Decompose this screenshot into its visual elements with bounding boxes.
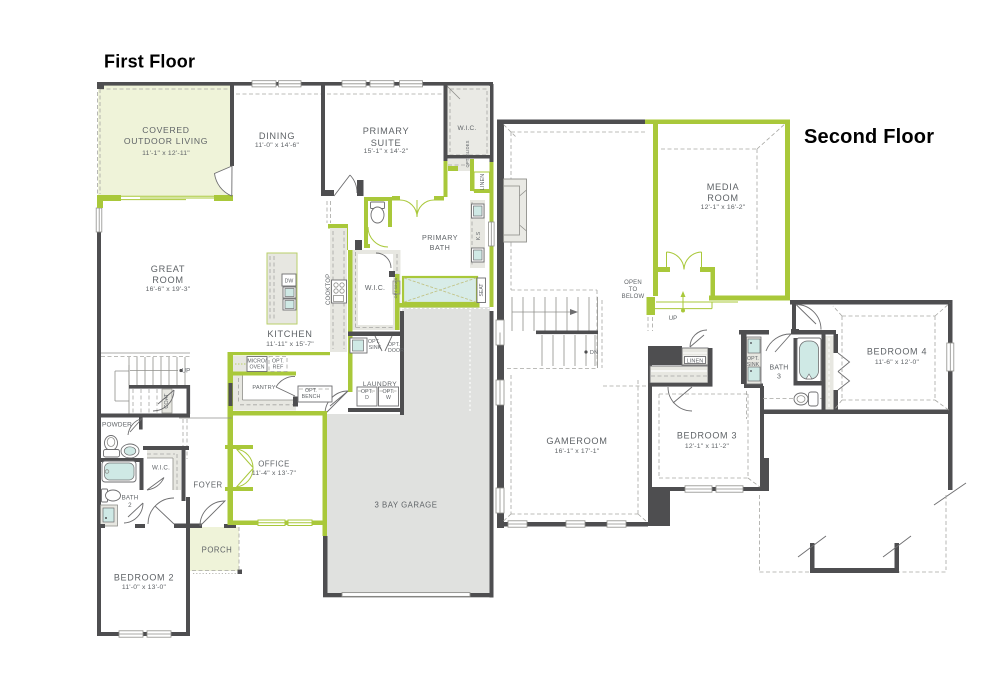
- svg-text:W.I.C.: W.I.C.: [365, 285, 385, 292]
- svg-text:11'-6" x 12'-0": 11'-6" x 12'-0": [875, 359, 920, 366]
- svg-text:2: 2: [128, 502, 132, 509]
- svg-text:12'-1" x 11'-2": 12'-1" x 11'-2": [685, 443, 730, 450]
- svg-text:OUTDOOR LIVING: OUTDOOR LIVING: [124, 136, 208, 146]
- svg-text:LINEN: LINEN: [480, 174, 486, 191]
- svg-text:First Floor: First Floor: [104, 52, 195, 72]
- svg-text:REF: REF: [273, 365, 284, 371]
- svg-text:15'-1" x 14'-2": 15'-1" x 14'-2": [364, 148, 409, 155]
- svg-text:D: D: [365, 395, 369, 401]
- svg-text:LINEN: LINEN: [687, 359, 704, 365]
- svg-text:SEAT: SEAT: [479, 283, 485, 296]
- svg-text:FOYER: FOYER: [193, 481, 222, 490]
- svg-text:TO: TO: [629, 287, 638, 293]
- svg-text:16'-1" x 17'-1": 16'-1" x 17'-1": [555, 448, 600, 455]
- svg-text:W.I.C.: W.I.C.: [458, 125, 477, 132]
- svg-text:DN: DN: [590, 350, 598, 356]
- svg-text:16'-6" x 19'-3": 16'-6" x 19'-3": [146, 286, 191, 293]
- svg-text:3: 3: [777, 374, 781, 381]
- svg-text:11'-0" x 13'-0": 11'-0" x 13'-0": [122, 584, 167, 591]
- svg-text:COAT: COAT: [164, 393, 170, 409]
- svg-text:SINK: SINK: [747, 362, 760, 368]
- svg-text:ROOM: ROOM: [707, 193, 738, 203]
- svg-text:BATH: BATH: [430, 243, 451, 252]
- svg-text:BEDROOM 4: BEDROOM 4: [867, 347, 927, 357]
- svg-text:DOOR: DOOR: [388, 348, 404, 354]
- svg-text:BENCH: BENCH: [302, 394, 321, 400]
- svg-text:OFFICE: OFFICE: [258, 460, 290, 469]
- svg-text:11'-11" x 15'-7": 11'-11" x 15'-7": [266, 341, 314, 348]
- svg-text:W: W: [386, 395, 391, 401]
- svg-text:3 BAY GARAGE: 3 BAY GARAGE: [375, 501, 438, 510]
- svg-text:UP: UP: [182, 369, 191, 375]
- svg-text:DINING: DINING: [259, 131, 295, 141]
- svg-text:PRIMARY: PRIMARY: [422, 233, 458, 242]
- svg-text:GAMEROOM: GAMEROOM: [546, 436, 607, 446]
- svg-text:OPEN: OPEN: [624, 280, 642, 286]
- svg-text:MEDIA: MEDIA: [707, 182, 740, 192]
- svg-text:K.S: K.S: [476, 231, 482, 240]
- svg-text:LAUNDRY: LAUNDRY: [363, 381, 397, 388]
- svg-text:OVEN: OVEN: [249, 365, 264, 371]
- svg-text:11'-0" x 14'-6": 11'-0" x 14'-6": [255, 142, 300, 149]
- svg-text:OPT.SINKS: OPT.SINKS: [394, 277, 398, 298]
- svg-text:11'-4" x 13'-7": 11'-4" x 13'-7": [252, 470, 297, 477]
- svg-text:UP: UP: [669, 316, 678, 322]
- svg-text:BELOW: BELOW: [622, 294, 645, 300]
- svg-text:BEDROOM 2: BEDROOM 2: [114, 573, 174, 583]
- svg-text:PRIMARY: PRIMARY: [363, 126, 410, 136]
- svg-text:DW: DW: [285, 279, 294, 285]
- svg-text:W.I.C.: W.I.C.: [152, 465, 170, 472]
- svg-text:BATH: BATH: [770, 365, 789, 372]
- svg-text:GREAT: GREAT: [151, 264, 185, 274]
- svg-text:PORCH: PORCH: [202, 546, 233, 555]
- svg-text:COOKTOP: COOKTOP: [326, 274, 332, 305]
- svg-text:12'-1" x 16'-2": 12'-1" x 16'-2": [701, 204, 746, 211]
- svg-text:SUITE: SUITE: [371, 138, 402, 148]
- svg-text:PANTRY: PANTRY: [252, 385, 275, 391]
- svg-text:BEDROOM 3: BEDROOM 3: [677, 431, 737, 441]
- svg-text:11'-1" x 12'-11": 11'-1" x 12'-11": [142, 150, 190, 157]
- svg-text:COVERED: COVERED: [142, 125, 189, 135]
- svg-text:OPT. GLIDES: OPT. GLIDES: [465, 140, 470, 167]
- svg-text:BATH: BATH: [122, 495, 139, 502]
- svg-text:ROOM: ROOM: [152, 275, 183, 285]
- svg-text:KITCHEN: KITCHEN: [267, 329, 312, 339]
- svg-text:POWDER: POWDER: [102, 422, 132, 429]
- svg-text:SINK: SINK: [369, 345, 382, 351]
- svg-text:Second Floor: Second Floor: [804, 126, 934, 148]
